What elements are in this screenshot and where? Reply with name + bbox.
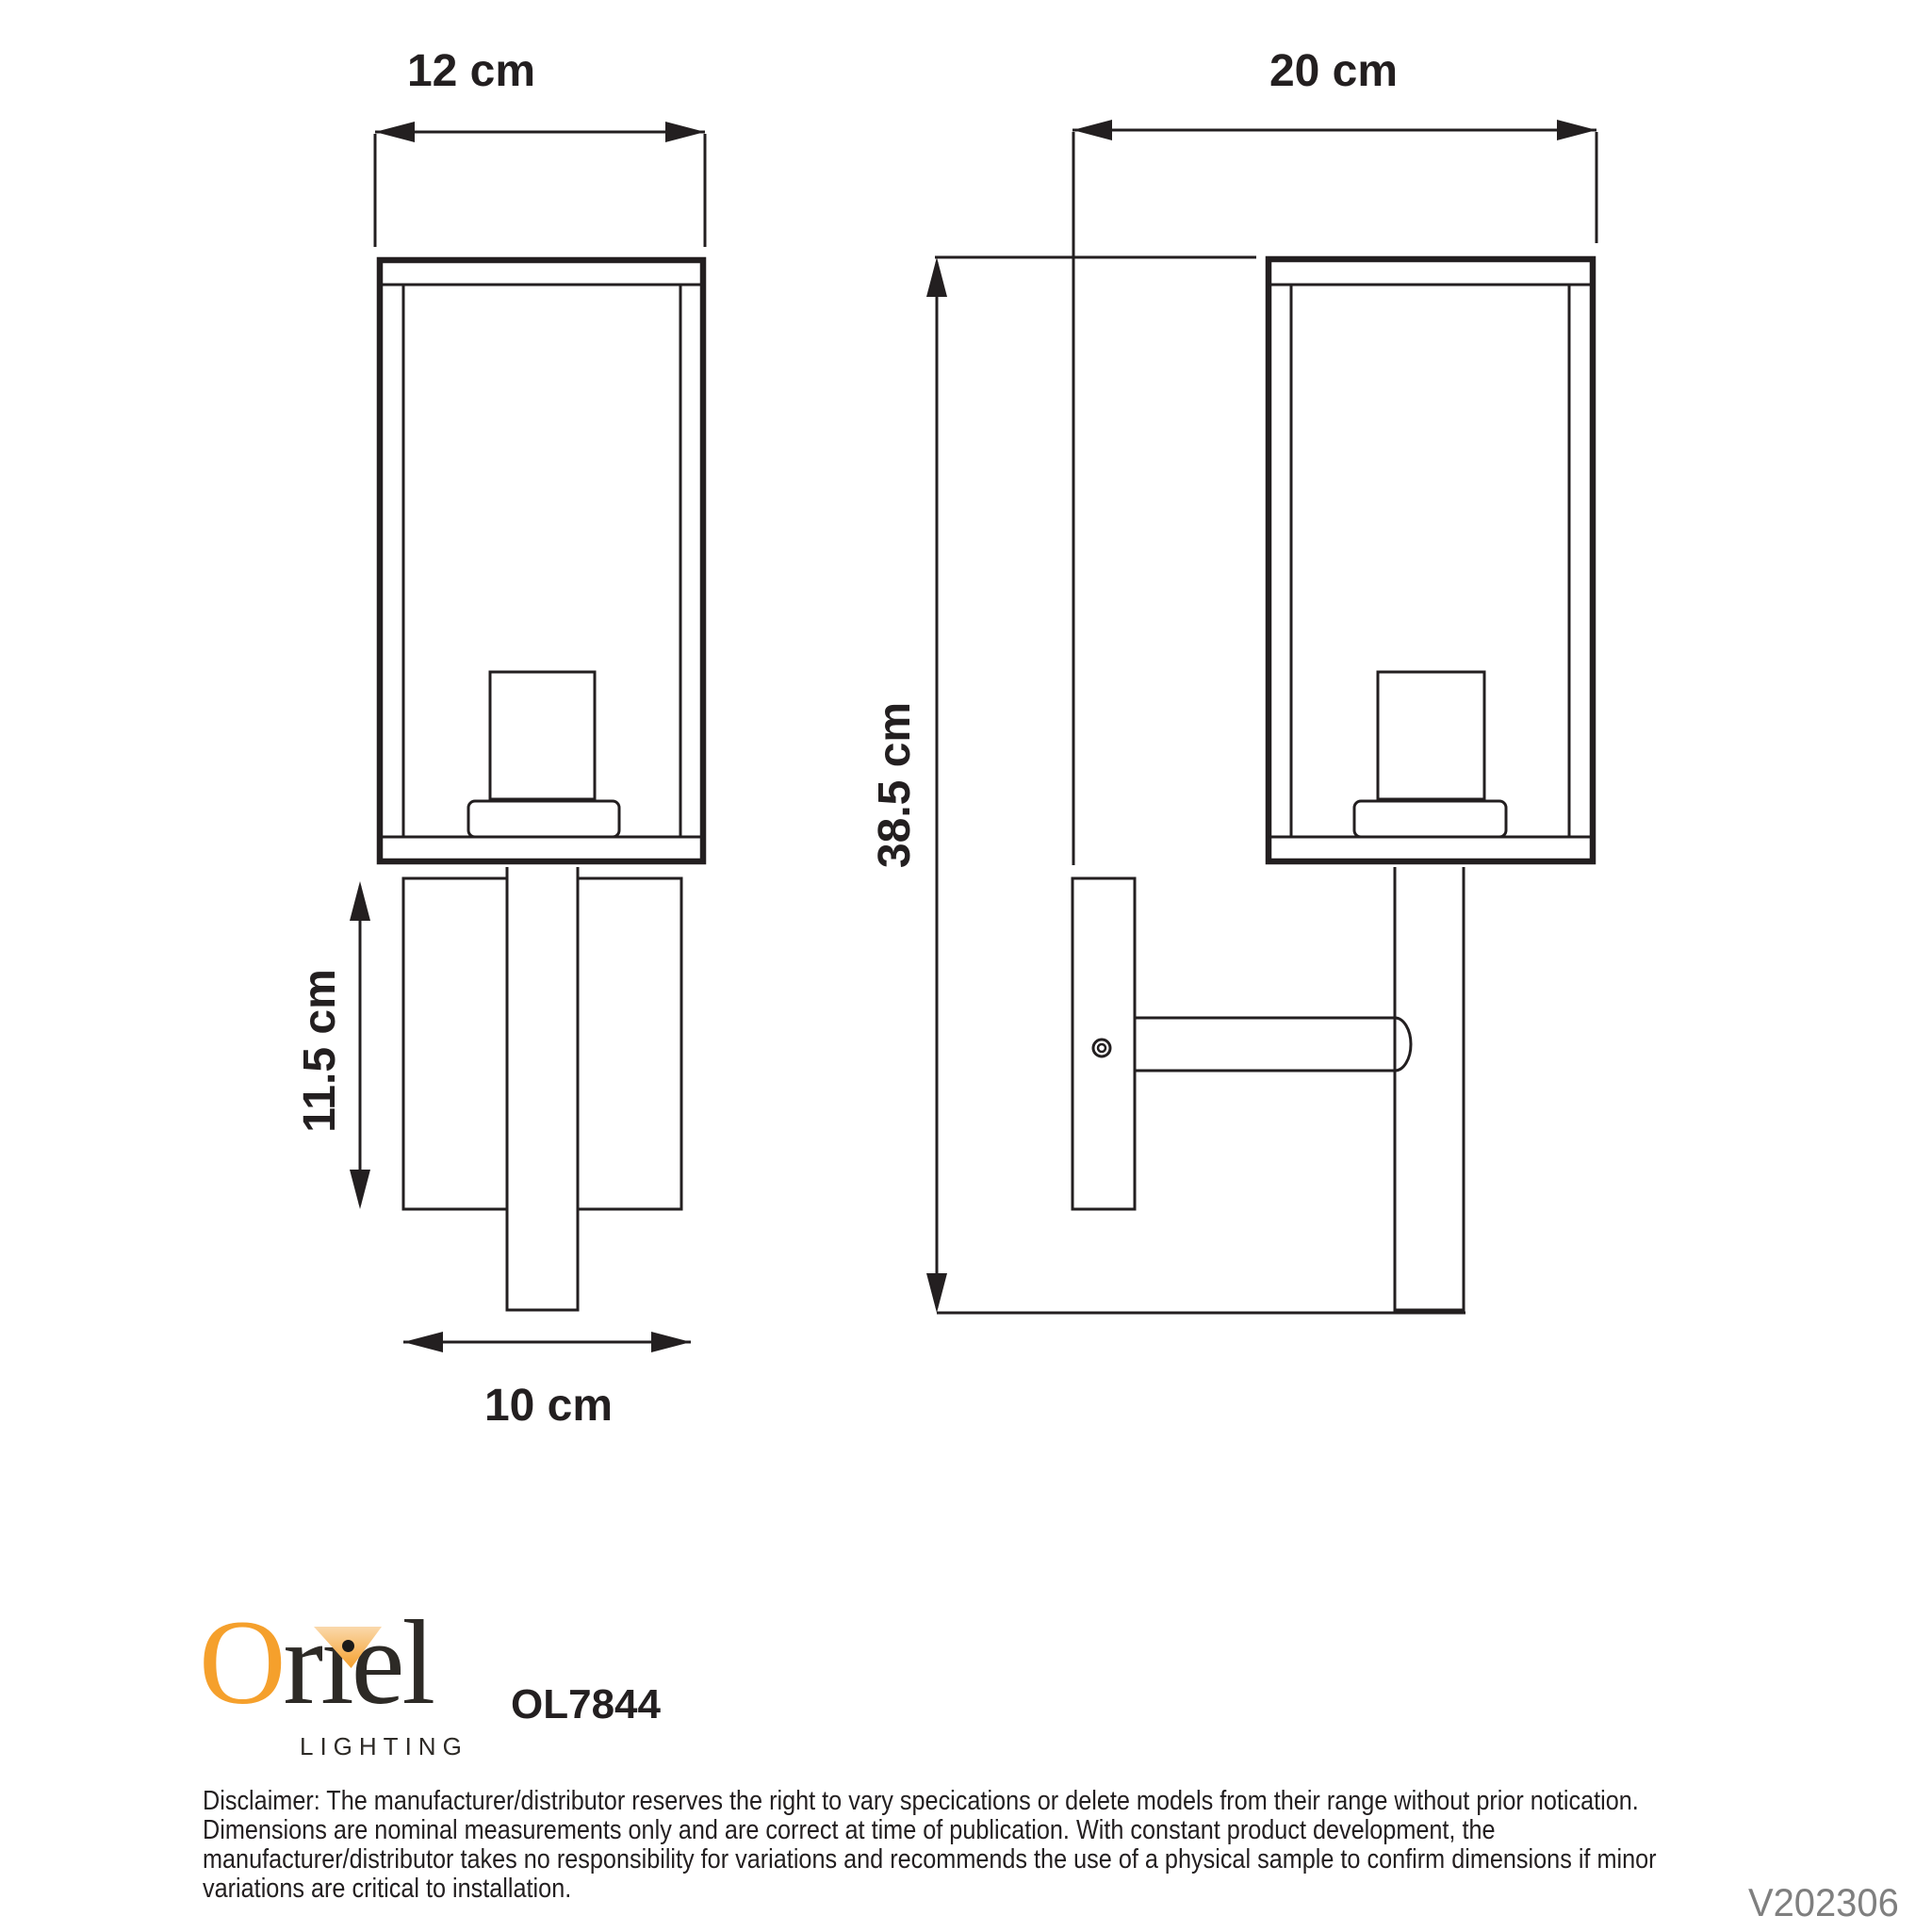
side-stem <box>1395 867 1464 1310</box>
side-wall-plate <box>1072 878 1135 1209</box>
plate-width-label: 10 cm <box>484 1381 613 1431</box>
arrowhead-right-icon <box>651 1332 691 1352</box>
model-number: OL7844 <box>511 1681 661 1728</box>
wordmark-letter-o: O <box>199 1596 283 1729</box>
arrowhead-right-icon <box>665 122 705 142</box>
disclaimer-line: Dimensions are nominal measurements only… <box>203 1816 1657 1845</box>
spec-sheet-page: 12 cm 11.5 cm <box>0 0 1932 1932</box>
arrowhead-down-icon <box>926 1273 947 1313</box>
arrowhead-down-icon <box>350 1170 370 1209</box>
disclaimer-text: Disclaimer: The manufacturer/distributor… <box>203 1787 1874 1904</box>
oriel-logo: Orıel <box>199 1602 519 1744</box>
side-view: 20 cm 38.5 cm <box>870 46 1596 1313</box>
front-width-label: 12 cm <box>407 46 535 96</box>
disclaimer-line: manufacturer/distributor takes no respon… <box>203 1845 1657 1875</box>
side-depth-label: 20 cm <box>1269 46 1398 96</box>
front-stem <box>507 867 578 1310</box>
arrowhead-left-icon <box>375 122 415 142</box>
side-lamp-socket <box>1354 672 1506 837</box>
side-mounting-arm <box>1135 1018 1395 1071</box>
logo-tagline: LIGHTING <box>300 1732 468 1761</box>
arrowhead-up-icon <box>926 257 947 297</box>
oriel-wordmark-text: Orıel <box>199 1602 433 1723</box>
disclaimer-line: Disclaimer: The manufacturer/distributor… <box>203 1787 1657 1816</box>
plate-height-dimension: 11.5 cm <box>295 881 370 1209</box>
front-width-dimension: 12 cm <box>375 46 705 247</box>
arrowhead-left-icon <box>1072 120 1112 140</box>
arrowhead-left-icon <box>403 1332 443 1352</box>
version-code: V202306 <box>1748 1880 1899 1925</box>
front-view: 12 cm 11.5 cm <box>295 46 705 1431</box>
lamp-dot-icon <box>342 1640 354 1652</box>
arrowhead-up-icon <box>350 881 370 921</box>
arrowhead-right-icon <box>1557 120 1596 140</box>
disclaimer-line: variations are critical to installation. <box>203 1875 1657 1904</box>
plate-height-label: 11.5 cm <box>295 969 345 1132</box>
wordmark-letter-r: r <box>283 1596 320 1729</box>
side-height-label: 38.5 cm <box>870 702 920 868</box>
wordmark-letters-el: el <box>352 1596 433 1729</box>
plate-width-dimension: 10 cm <box>403 1332 691 1431</box>
